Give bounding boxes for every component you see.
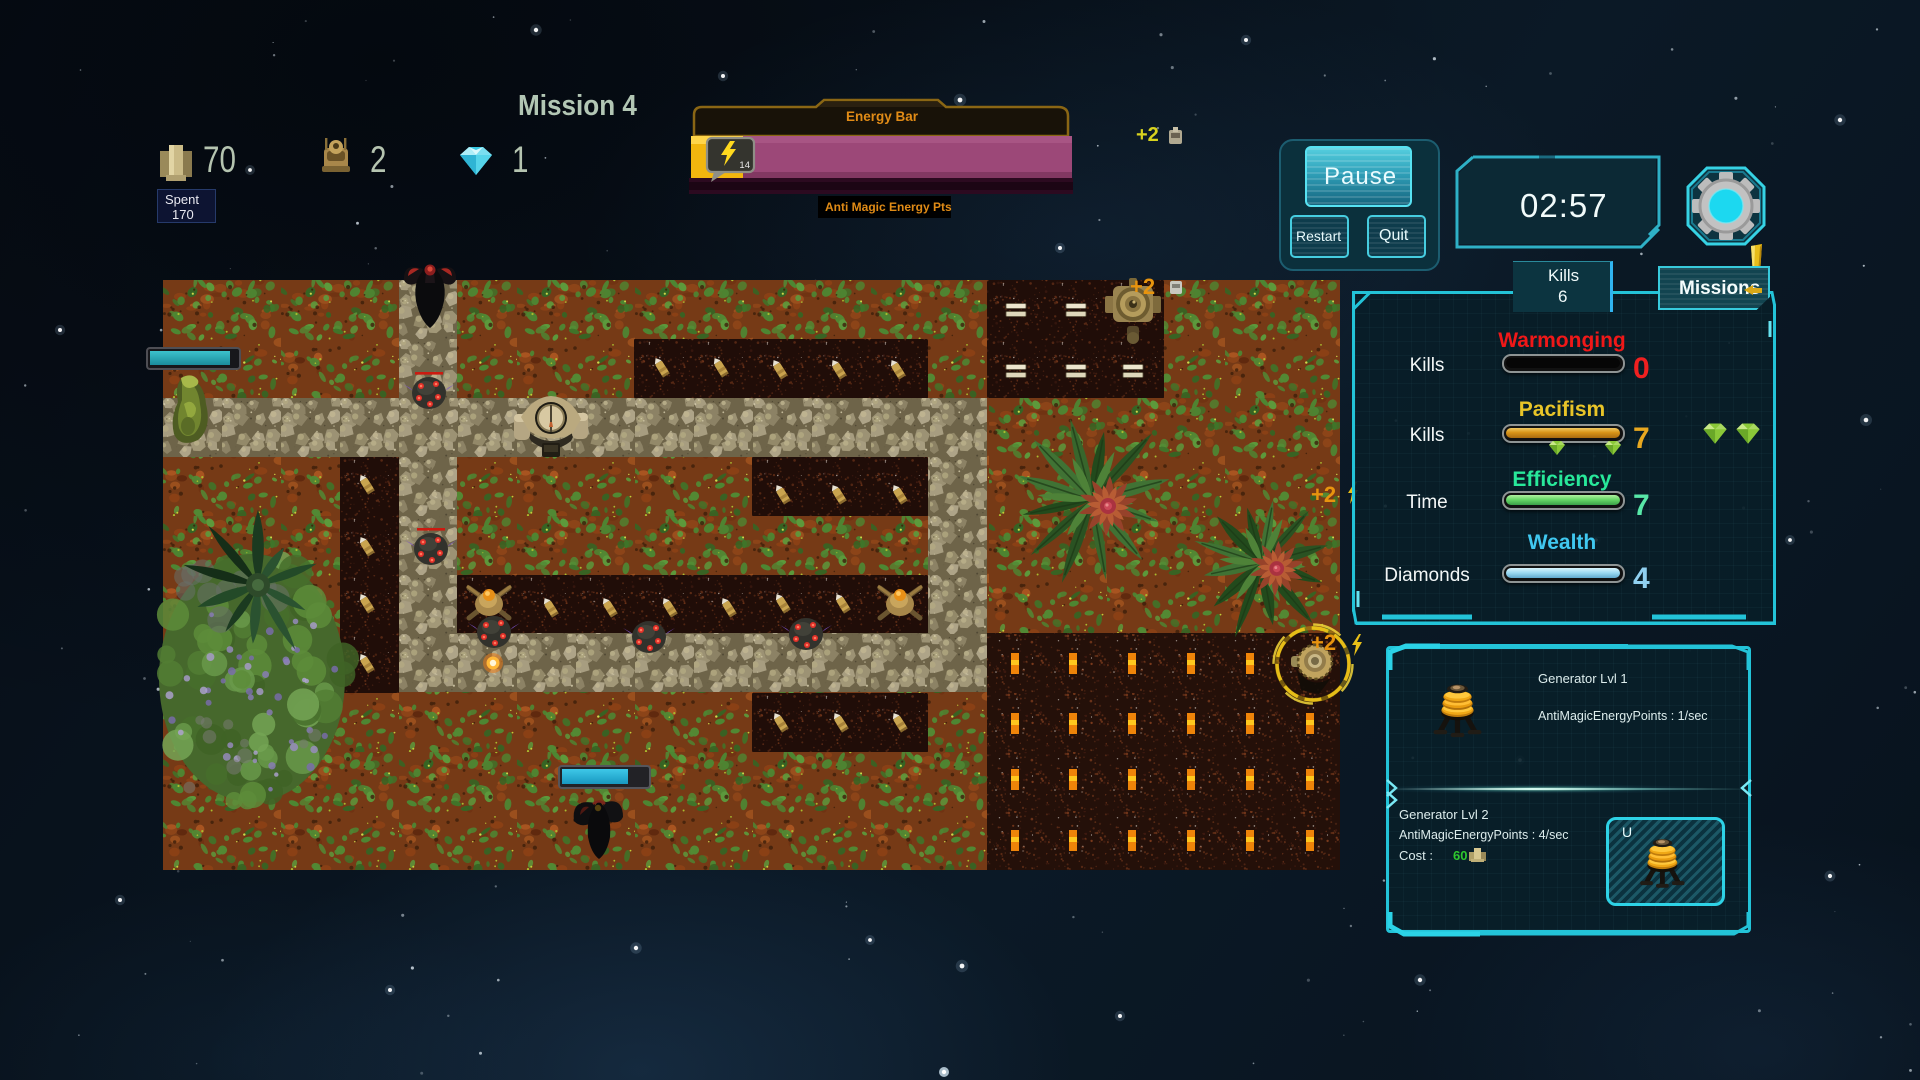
svg-text:Energy Bar: Energy Bar [846, 109, 919, 124]
svg-text:14: 14 [739, 160, 750, 171]
